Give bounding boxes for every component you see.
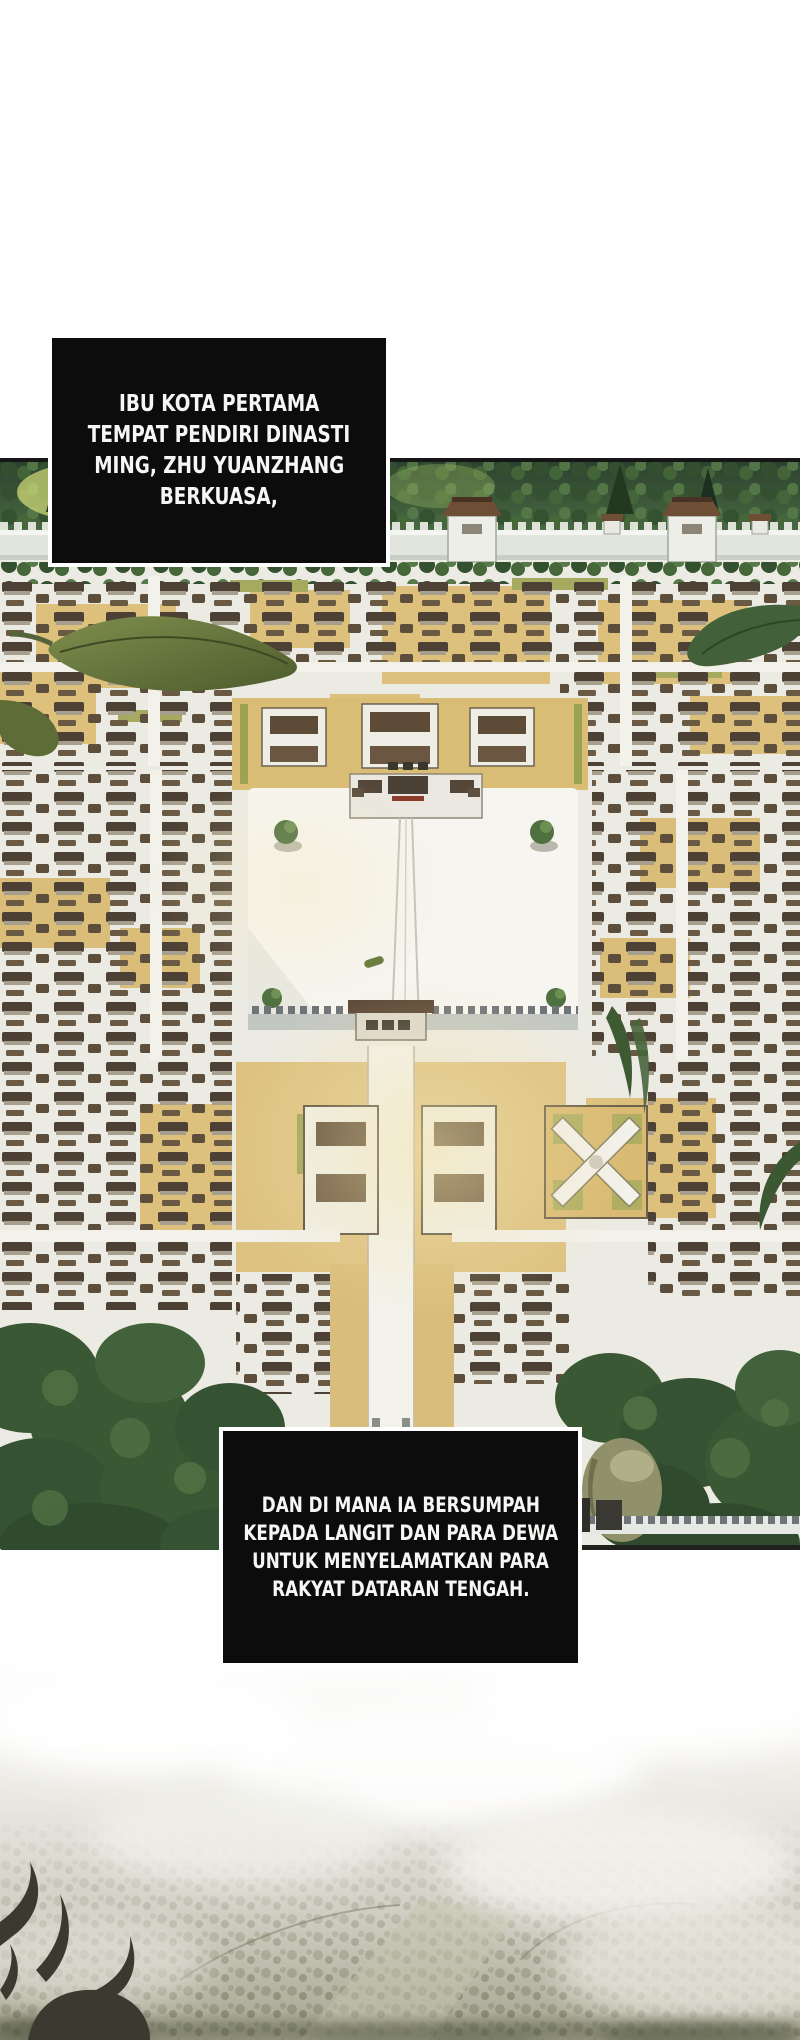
caption-line: TEMPAT PENDIRI DINASTI	[88, 420, 350, 451]
caption-line: MING, ZHU YUANZHANG	[94, 451, 344, 482]
wall-turret	[601, 514, 623, 534]
light-glow	[150, 768, 450, 1008]
caption-line: UNTUK MENYELAMATKAN PARA	[252, 1547, 549, 1575]
east-district	[592, 770, 800, 1060]
wall-turret	[749, 514, 771, 534]
caption-box-bottom: DAN DI MANA IA BERSUMPAH KEPADA LANGIT D…	[219, 1427, 582, 1667]
caption-line: IBU KOTA PERTAMA	[119, 389, 319, 420]
caption-line: BERKUASA,	[160, 482, 278, 513]
comic-page: IBU KOTA PERTAMA TEMPAT PENDIRI DINASTI …	[0, 0, 800, 2040]
light-glow	[230, 978, 630, 1318]
caption-line: RAKYAT DATARAN TENGAH.	[272, 1575, 529, 1603]
caption-box-top: IBU KOTA PERTAMA TEMPAT PENDIRI DINASTI …	[48, 334, 390, 567]
city-illustration	[0, 458, 800, 1550]
gate-tower	[662, 497, 722, 562]
mist-panel	[0, 1660, 800, 2040]
gate-tower	[442, 497, 502, 562]
mist-illustration	[0, 1660, 800, 2040]
city-aerial-panel	[0, 458, 800, 1550]
caption-line: DAN DI MANA IA BERSUMPAH	[261, 1491, 539, 1519]
caption-line: KEPADA LANGIT DAN PARA DEWA	[243, 1519, 558, 1547]
